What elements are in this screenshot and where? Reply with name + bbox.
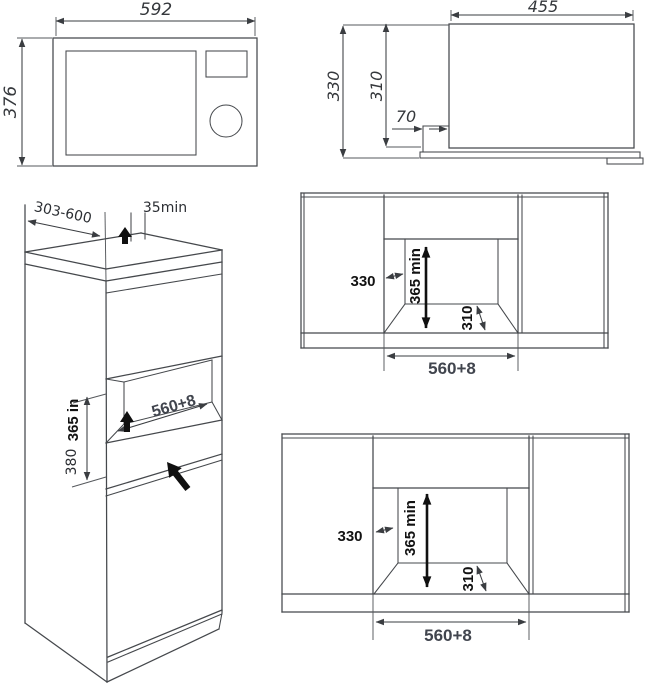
oven-display <box>206 51 247 77</box>
front-width-dimension: 592 <box>56 0 255 36</box>
lower-min-height-dimension: 365 min <box>402 494 427 587</box>
front-height-dimension: 376 <box>1 38 52 166</box>
niche-cutout-lower-view: 330 365 min 310 560+8 <box>282 434 629 645</box>
oven-knob <box>210 105 242 137</box>
lower-shelf-depth-dimension: 310 <box>460 566 486 592</box>
lower-opening-width-label: 560+8 <box>424 626 472 645</box>
lower-min-height-label: 365 min <box>402 500 419 556</box>
front-height-dim-label: 376 <box>1 86 21 119</box>
side-total-height-dim-label: 330 <box>324 71 343 102</box>
side-base-plate <box>420 152 640 158</box>
cabinet-rear-gap-label: 35min <box>143 200 187 216</box>
upper-shelf-depth-dimension: 310 <box>459 305 485 330</box>
cabinet-depth-dimension: 303-600 <box>28 199 100 236</box>
cabinet-isometric-view: 303-600 35min 365 in 380 560+8 <box>25 199 222 682</box>
insert-direction-arrow-icon <box>167 462 190 491</box>
vent-up-arrow-icon <box>118 227 132 244</box>
side-body-height-dim-label: 310 <box>367 71 386 102</box>
oven-door <box>66 51 196 155</box>
oven-outline <box>53 38 257 166</box>
upper-wall-depth-label: 330 <box>350 273 375 290</box>
microwave-side-view: 455 330 310 70 <box>324 0 643 164</box>
side-overhang-dim-label: 70 <box>396 107 416 126</box>
cabinet-niche-height-dimension: 365 in 380 <box>64 394 106 487</box>
upper-min-height-dimension: 365 min <box>407 247 426 328</box>
microwave-front-view: 592 376 <box>1 0 257 166</box>
side-width-dimension: 455 <box>451 0 633 21</box>
side-rear-foot <box>607 158 643 164</box>
side-width-dim-label: 455 <box>528 0 559 16</box>
lower-opening-width-dimension: 560+8 <box>376 622 526 645</box>
lower-wall-depth-label: 330 <box>337 528 362 545</box>
niche-cutout-upper-view: 330 365 min 310 560+8 <box>301 193 608 378</box>
upper-opening-width-dimension: 560+8 <box>387 356 515 378</box>
front-width-dim-label: 592 <box>140 0 172 20</box>
upper-opening-width-label: 560+8 <box>428 359 476 378</box>
lower-shelf-depth-label: 310 <box>460 566 477 591</box>
cabinet-niche-height-dim-label: 365 in <box>65 399 82 442</box>
side-body <box>449 24 634 148</box>
upper-shelf-depth-label: 310 <box>459 305 476 330</box>
cabinet-niche-width-dim-label: 560+8 <box>150 392 198 421</box>
cabinet-lower-height-dim-label: 380 <box>64 449 80 476</box>
cabinet-depth-dim-label: 303-600 <box>33 199 94 227</box>
upper-wall-depth-dimension: 330 <box>350 273 403 290</box>
upper-min-height-label: 365 min <box>407 248 424 304</box>
niche-up-arrow-icon <box>120 411 134 432</box>
lower-wall-depth-dimension: 330 <box>337 528 393 545</box>
installation-diagram-page: 592 376 455 330 310 <box>0 0 666 691</box>
installation-diagram: 592 376 455 330 310 <box>0 0 666 691</box>
